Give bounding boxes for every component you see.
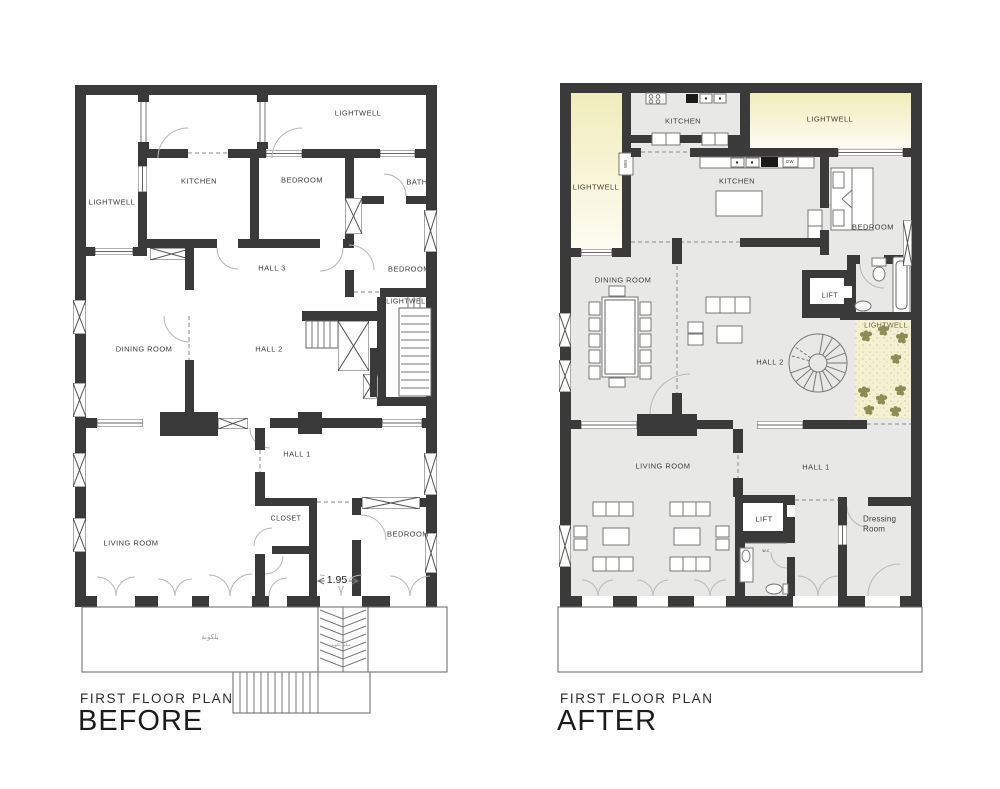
- before-label-kitchen: KITCHEN: [181, 177, 217, 186]
- before-label-lightwell-top: LIGHTWELL: [335, 109, 382, 118]
- after-title: AFTER: [557, 705, 657, 738]
- before-label-bedroom-top: BEDROOM: [281, 176, 323, 185]
- bed: [831, 168, 873, 230]
- before-stair-right: [399, 297, 431, 396]
- after-label-washing-machine: WM: [624, 160, 628, 168]
- after-label-bedroom: BEDROOM: [852, 223, 894, 232]
- floor-plan-comparison: LIGHTWELL KITCHEN BEDROOM BATH LIGHTWELL…: [0, 0, 1000, 789]
- after-kitchen-top-appliances: [646, 93, 726, 104]
- after-label-kitchen-top: KITCHEN: [665, 117, 701, 126]
- before-label-lightwell-right: LIGHTWELL: [386, 299, 430, 306]
- after-lightwell-left-area: [571, 93, 622, 250]
- after-label-dining-room: DINING ROOM: [595, 276, 652, 285]
- after-label-lightwell-top: LIGHTWELL: [807, 115, 854, 124]
- before-label-dining-room: DINING ROOM: [116, 345, 173, 354]
- before-label-living-room: LIVING ROOM: [104, 539, 159, 548]
- before-dimension-label: 1.95: [325, 574, 349, 586]
- after-kitchen-counter: [700, 157, 814, 168]
- after-plan: [558, 83, 922, 672]
- after-balcony: [558, 607, 922, 672]
- before-label-bedroom-right: BEDROOM: [388, 265, 430, 274]
- before-label-hall-3: HALL 3: [258, 264, 285, 273]
- before-balcony-stairs: [318, 607, 368, 673]
- after-label-dishwasher: DW: [786, 160, 794, 164]
- before-subtitle: FIRST FLOOR PLAN: [80, 691, 234, 706]
- after-label-lightwell-garden: LIGHTWELL: [864, 323, 908, 330]
- before-label-bedroom-bottom: BEDROOM: [387, 530, 429, 539]
- after-label-kitchen-main: KITCHEN: [719, 177, 755, 186]
- after-label-lift-upper: LIFT: [822, 293, 838, 300]
- after-subtitle: FIRST FLOOR PLAN: [560, 691, 714, 706]
- before-balcony-stairs-label: سلم بلكونة: [331, 643, 350, 648]
- after-garden-lightwell: [855, 318, 912, 418]
- before-plan: [73, 85, 447, 713]
- before-balcony-label: بلكونة: [201, 633, 218, 641]
- before-exterior-stairs: [233, 672, 370, 713]
- before-label-hall-1: HALL 1: [283, 450, 310, 459]
- after-label-lift-lower: LIFT: [755, 515, 772, 524]
- after-label-hall-2: HALL 2: [756, 358, 783, 367]
- after-label-wc: w.c: [762, 549, 769, 553]
- before-label-lightwell-left: LIGHTWELL: [89, 198, 136, 207]
- after-label-hall-1: HALL 1: [802, 463, 829, 472]
- before-label-closet: CLOSET: [271, 516, 302, 523]
- before-stair-middle: [306, 321, 338, 348]
- after-label-lightwell-left: LIGHTWELL: [573, 183, 620, 192]
- before-title: BEFORE: [78, 705, 203, 738]
- before-balcony: [82, 607, 447, 672]
- kitchen-island: [716, 191, 762, 216]
- before-label-hall-2: HALL 2: [255, 345, 282, 354]
- after-label-living-room: LIVING ROOM: [636, 462, 691, 471]
- before-label-bath: BATH: [406, 178, 427, 187]
- after-label-dressing-room: Dressing Room: [863, 515, 909, 536]
